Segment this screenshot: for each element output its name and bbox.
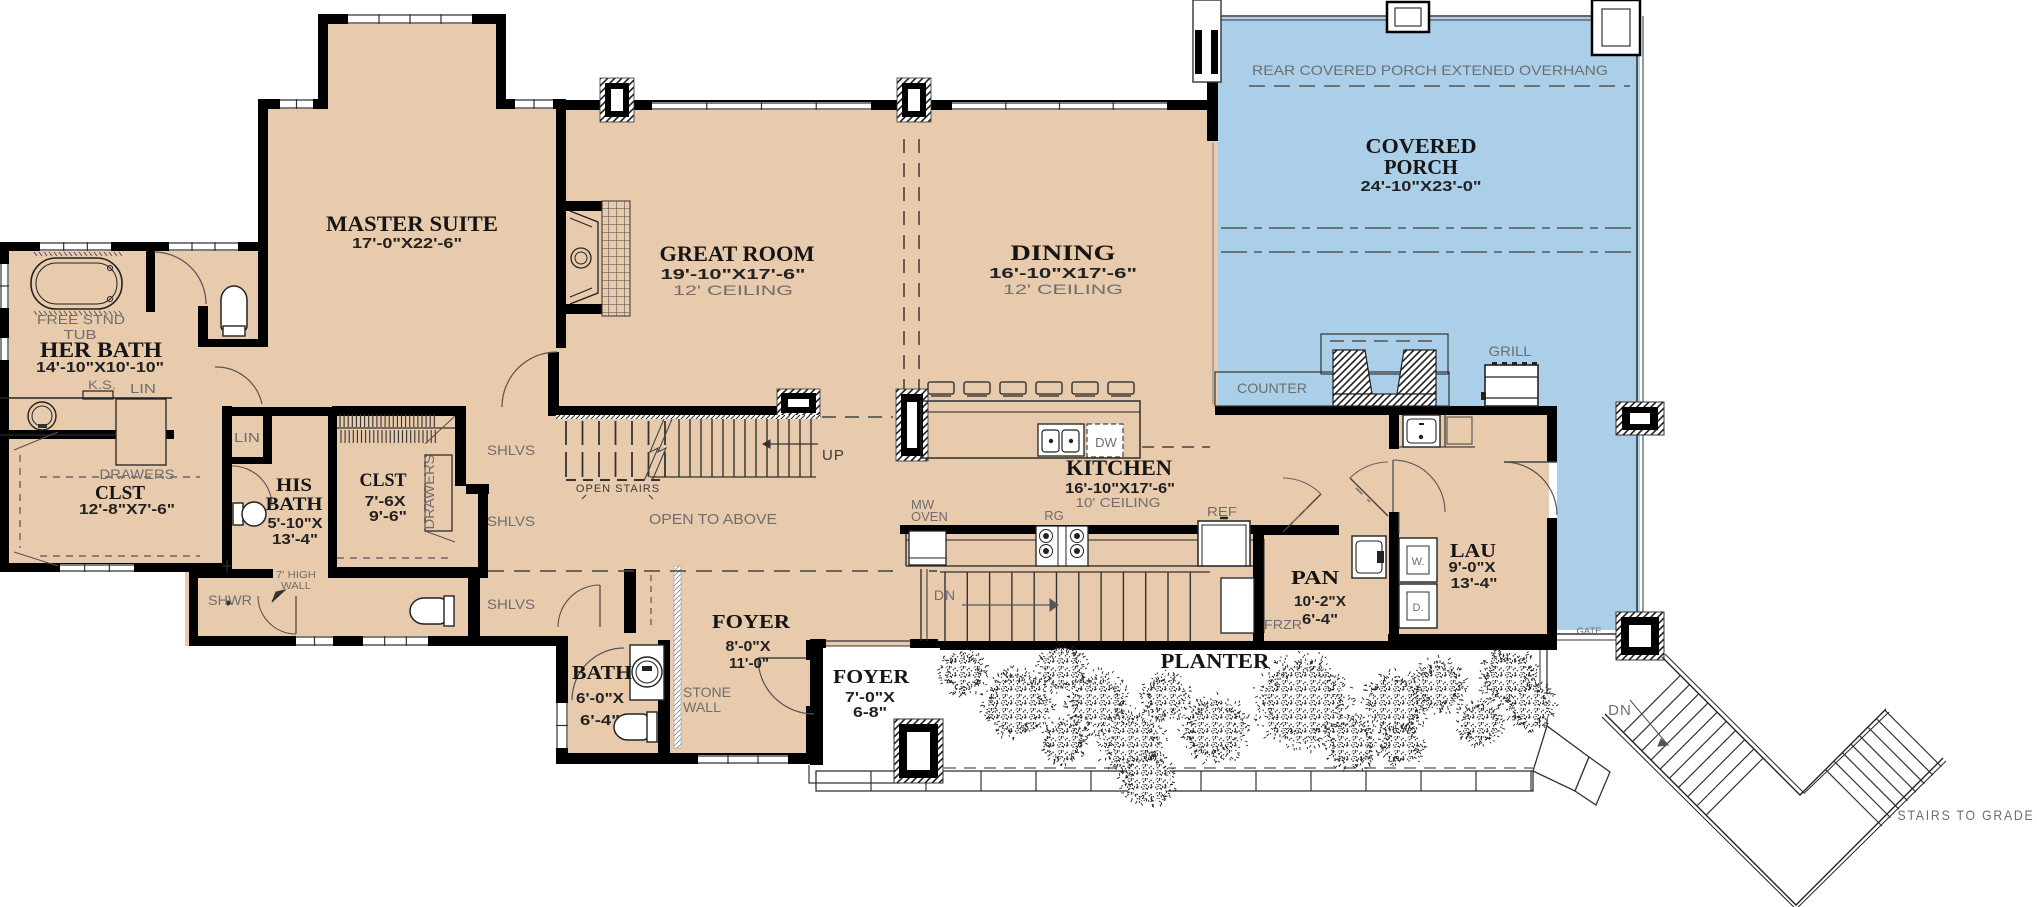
svg-text:17'-0"X22'-6": 17'-0"X22'-6" bbox=[352, 235, 462, 252]
svg-text:W.: W. bbox=[1412, 556, 1425, 568]
svg-text:BATH: BATH bbox=[266, 494, 323, 515]
svg-text:STONE: STONE bbox=[683, 684, 731, 700]
svg-text:TUB: TUB bbox=[64, 327, 97, 342]
svg-text:SHLVS: SHLVS bbox=[487, 596, 535, 612]
svg-text:6'-4": 6'-4" bbox=[580, 712, 620, 729]
svg-text:PORCH: PORCH bbox=[1384, 155, 1458, 179]
svg-text:SHWR: SHWR bbox=[208, 592, 252, 608]
svg-text:DRAWERS: DRAWERS bbox=[421, 455, 437, 530]
svg-text:LIN: LIN bbox=[130, 381, 156, 396]
svg-text:KITCHEN: KITCHEN bbox=[1066, 455, 1172, 480]
svg-text:19'-10"X17'-6": 19'-10"X17'-6" bbox=[661, 266, 806, 283]
svg-text:13'-4": 13'-4" bbox=[1451, 575, 1498, 592]
svg-text:FREE STND: FREE STND bbox=[37, 312, 125, 327]
svg-text:FOYER: FOYER bbox=[712, 611, 791, 633]
svg-text:DW: DW bbox=[1095, 435, 1117, 450]
svg-text:COUNTER: COUNTER bbox=[1237, 380, 1307, 396]
svg-text:UP: UP bbox=[822, 447, 845, 464]
svg-text:WALL: WALL bbox=[683, 699, 721, 715]
svg-text:11'-0": 11'-0" bbox=[729, 655, 769, 672]
svg-text:24'-10"X23'-0": 24'-10"X23'-0" bbox=[1361, 178, 1482, 195]
svg-text:OVEN: OVEN bbox=[911, 509, 948, 524]
svg-text:STAIRS TO GRADE: STAIRS TO GRADE bbox=[1898, 807, 2035, 823]
svg-text:RG: RG bbox=[1044, 508, 1064, 523]
svg-text:K.S.: K.S. bbox=[88, 378, 116, 392]
svg-text:GREAT ROOM: GREAT ROOM bbox=[660, 241, 815, 266]
svg-text:DN: DN bbox=[934, 587, 956, 603]
svg-text:WALL: WALL bbox=[281, 581, 311, 592]
svg-text:DINING: DINING bbox=[1011, 240, 1116, 265]
svg-text:7' HIGH: 7' HIGH bbox=[276, 570, 316, 581]
svg-text:12' CEILING: 12' CEILING bbox=[673, 282, 793, 298]
svg-text:GRILL: GRILL bbox=[1489, 343, 1532, 359]
svg-text:REF: REF bbox=[1207, 504, 1237, 519]
svg-text:12'-8"X7'-6": 12'-8"X7'-6" bbox=[79, 501, 175, 518]
svg-text:OPEN TO ABOVE: OPEN TO ABOVE bbox=[649, 511, 777, 528]
svg-text:13'-4": 13'-4" bbox=[272, 531, 318, 548]
svg-text:10'-2"X: 10'-2"X bbox=[1294, 593, 1346, 610]
svg-text:PLANTER: PLANTER bbox=[1161, 649, 1271, 673]
svg-text:5'-10"X: 5'-10"X bbox=[268, 515, 323, 532]
svg-text:6'-4": 6'-4" bbox=[1302, 611, 1338, 628]
svg-text:12' CEILING: 12' CEILING bbox=[1003, 281, 1123, 297]
svg-text:FRZR: FRZR bbox=[1264, 617, 1302, 632]
svg-text:SHLVS: SHLVS bbox=[487, 442, 535, 458]
svg-text:6-8": 6-8" bbox=[853, 704, 887, 721]
svg-text:9'-0"X: 9'-0"X bbox=[1449, 559, 1496, 576]
svg-text:DRAWERS: DRAWERS bbox=[100, 466, 175, 482]
svg-text:GATE: GATE bbox=[1577, 626, 1602, 636]
svg-text:DN: DN bbox=[1608, 702, 1632, 719]
svg-text:8'-0"X: 8'-0"X bbox=[726, 638, 771, 655]
svg-text:10' CEILING: 10' CEILING bbox=[1076, 495, 1161, 510]
svg-text:FOYER: FOYER bbox=[833, 666, 910, 688]
svg-text:6'-0"X: 6'-0"X bbox=[576, 690, 624, 707]
svg-text:D.: D. bbox=[1413, 602, 1424, 614]
svg-text:BATH: BATH bbox=[572, 662, 632, 684]
svg-text:PAN: PAN bbox=[1291, 567, 1340, 589]
svg-text:OPEN STAIRS: OPEN STAIRS bbox=[576, 483, 660, 495]
svg-text:SHLVS: SHLVS bbox=[487, 513, 535, 529]
svg-text:CLST: CLST bbox=[360, 470, 407, 491]
svg-text:HIS: HIS bbox=[276, 475, 312, 496]
svg-text:REAR COVERED PORCH EXTENED OVE: REAR COVERED PORCH EXTENED OVERHANG bbox=[1252, 62, 1608, 78]
svg-text:14'-10"X10'-10": 14'-10"X10'-10" bbox=[36, 359, 164, 376]
svg-text:9'-6": 9'-6" bbox=[369, 508, 407, 525]
svg-text:MASTER SUITE: MASTER SUITE bbox=[326, 211, 498, 236]
svg-text:16'-10"X17'-6": 16'-10"X17'-6" bbox=[989, 265, 1137, 282]
svg-text:LIN: LIN bbox=[234, 430, 260, 445]
